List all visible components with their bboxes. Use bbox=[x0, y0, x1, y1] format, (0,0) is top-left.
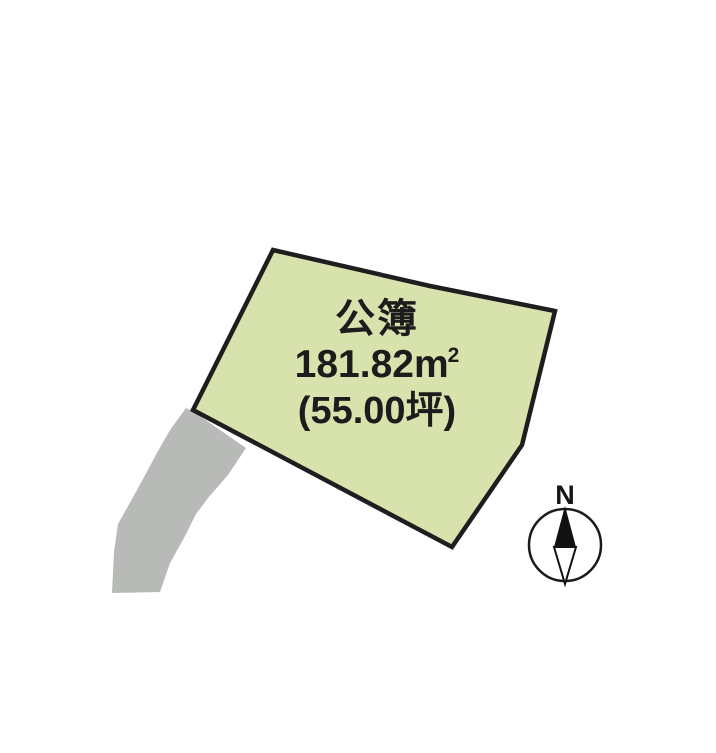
parcel-area-label: 公簿 181.82m2 (55.00坪) bbox=[295, 296, 460, 434]
compass-icon bbox=[529, 506, 601, 584]
parcel-area-sqm: 181.82m2 bbox=[295, 342, 460, 388]
compass-north-label: N bbox=[555, 482, 575, 509]
parcel-area-unit: m bbox=[414, 343, 449, 386]
land-plot-diagram: 公簿 181.82m2 (55.00坪) N bbox=[0, 0, 716, 753]
parcel-register-label: 公簿 bbox=[295, 296, 460, 342]
parcel-area-value: 181.82 bbox=[295, 343, 414, 386]
parcel-area-tsubo: (55.00坪) bbox=[295, 388, 460, 434]
road-shape bbox=[112, 408, 246, 593]
